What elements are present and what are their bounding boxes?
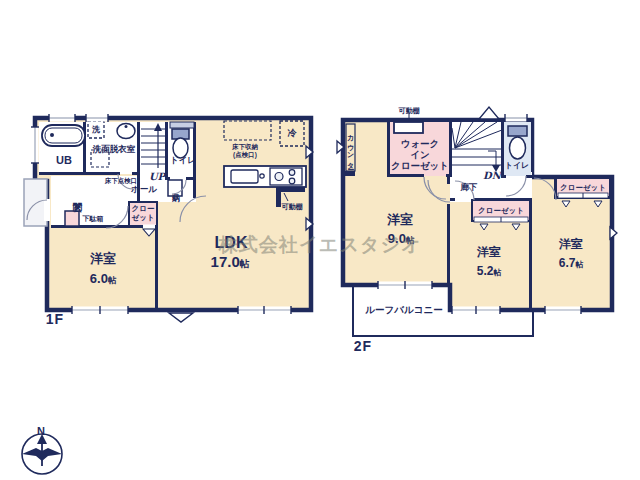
room-label-bedroom-1f: 洋室	[90, 251, 116, 266]
room-label-toilet-1f: トイレ	[170, 155, 196, 165]
compass-north-label: N	[37, 425, 45, 438]
counter-label: カウンター	[346, 130, 354, 167]
closet-label-right-2f: クローゼット	[560, 184, 606, 193]
shoe-cabinet-label: 下駄箱	[83, 215, 104, 223]
movable-shelf-nook	[394, 122, 423, 133]
floor1-label: 1F	[46, 311, 64, 328]
floorplan-page: UB 洗 洗面脱衣室 トイレ UP ホール 収納 床下点検口 玄関 下駄箱 クロ…	[0, 0, 640, 480]
bottom-vent-marker-1f	[169, 313, 193, 322]
room-label-entrance: 玄関	[72, 194, 83, 196]
room-label-bedroom1-2f: 洋室	[387, 212, 413, 227]
compass-icon	[22, 434, 62, 474]
room-label-bedroom3-2f: 洋室	[559, 237, 583, 251]
vent-marker-top-2f	[479, 107, 499, 119]
room-area-bedroom2-2f: 5.2帖	[477, 264, 501, 278]
room-label-storage: 収納	[171, 187, 180, 189]
closet-label-1f: クロー ゼット	[131, 205, 154, 223]
washbasin-icon	[117, 124, 135, 139]
floor2-plan	[337, 107, 617, 336]
washer-label: 洗	[92, 125, 100, 134]
shoe-cabinet-1f	[65, 211, 79, 226]
floor1-plan	[24, 114, 313, 322]
closet-label-mid-2f: クローゼット	[478, 207, 524, 216]
roof-balcony-label: ルーフバルコニー	[365, 304, 442, 315]
room-label-hallway: 廊下	[461, 182, 478, 192]
floor2-label: 2F	[354, 338, 372, 355]
underfloor-hatch-label: 床下点検口	[105, 177, 138, 185]
room-label-bedroom2-2f: 洋室	[477, 245, 501, 259]
bathtub-icon	[42, 125, 85, 146]
stairs-up-label: UP	[149, 171, 165, 183]
movable-shelf-label-1f: 可動棚	[282, 203, 303, 211]
walk-in-closet-label: ウォーク イン クローゼット	[391, 138, 449, 172]
toilet-icon-2f	[508, 126, 527, 159]
room-label-washroom: 洗面脱衣室	[93, 144, 136, 154]
room-label-unit-bath: UB	[56, 154, 72, 167]
stairs-down-label: DN	[483, 170, 501, 182]
room-label-hall: ホール	[131, 184, 157, 194]
underfloor-storage-label: 床下収納 (点検口)	[232, 143, 258, 158]
kitchen-counter-icon	[224, 166, 306, 187]
room-area-bedroom-1f: 6.0帖	[90, 271, 116, 286]
fridge-label: 冷	[288, 128, 297, 139]
room-area-bedroom3-2f: 6.7帖	[559, 256, 583, 270]
watermark: 株式会社イエスタジオ	[219, 232, 422, 258]
room-label-toilet-2f: トイレ	[505, 161, 530, 170]
movable-shelf-label-2f: 可動棚	[399, 107, 420, 115]
